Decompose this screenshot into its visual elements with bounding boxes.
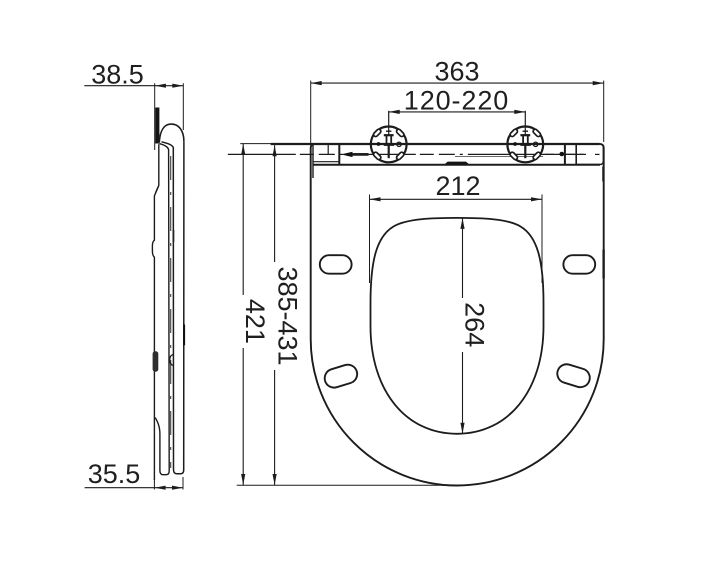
svg-text:120-220: 120-220 bbox=[404, 85, 509, 115]
svg-text:38.5: 38.5 bbox=[91, 59, 144, 89]
svg-text:212: 212 bbox=[435, 171, 480, 201]
svg-text:421: 421 bbox=[240, 299, 270, 344]
svg-text:363: 363 bbox=[434, 57, 479, 87]
svg-text:35.5: 35.5 bbox=[88, 459, 141, 489]
svg-text:264: 264 bbox=[460, 302, 490, 347]
svg-text:385-431: 385-431 bbox=[273, 266, 303, 365]
